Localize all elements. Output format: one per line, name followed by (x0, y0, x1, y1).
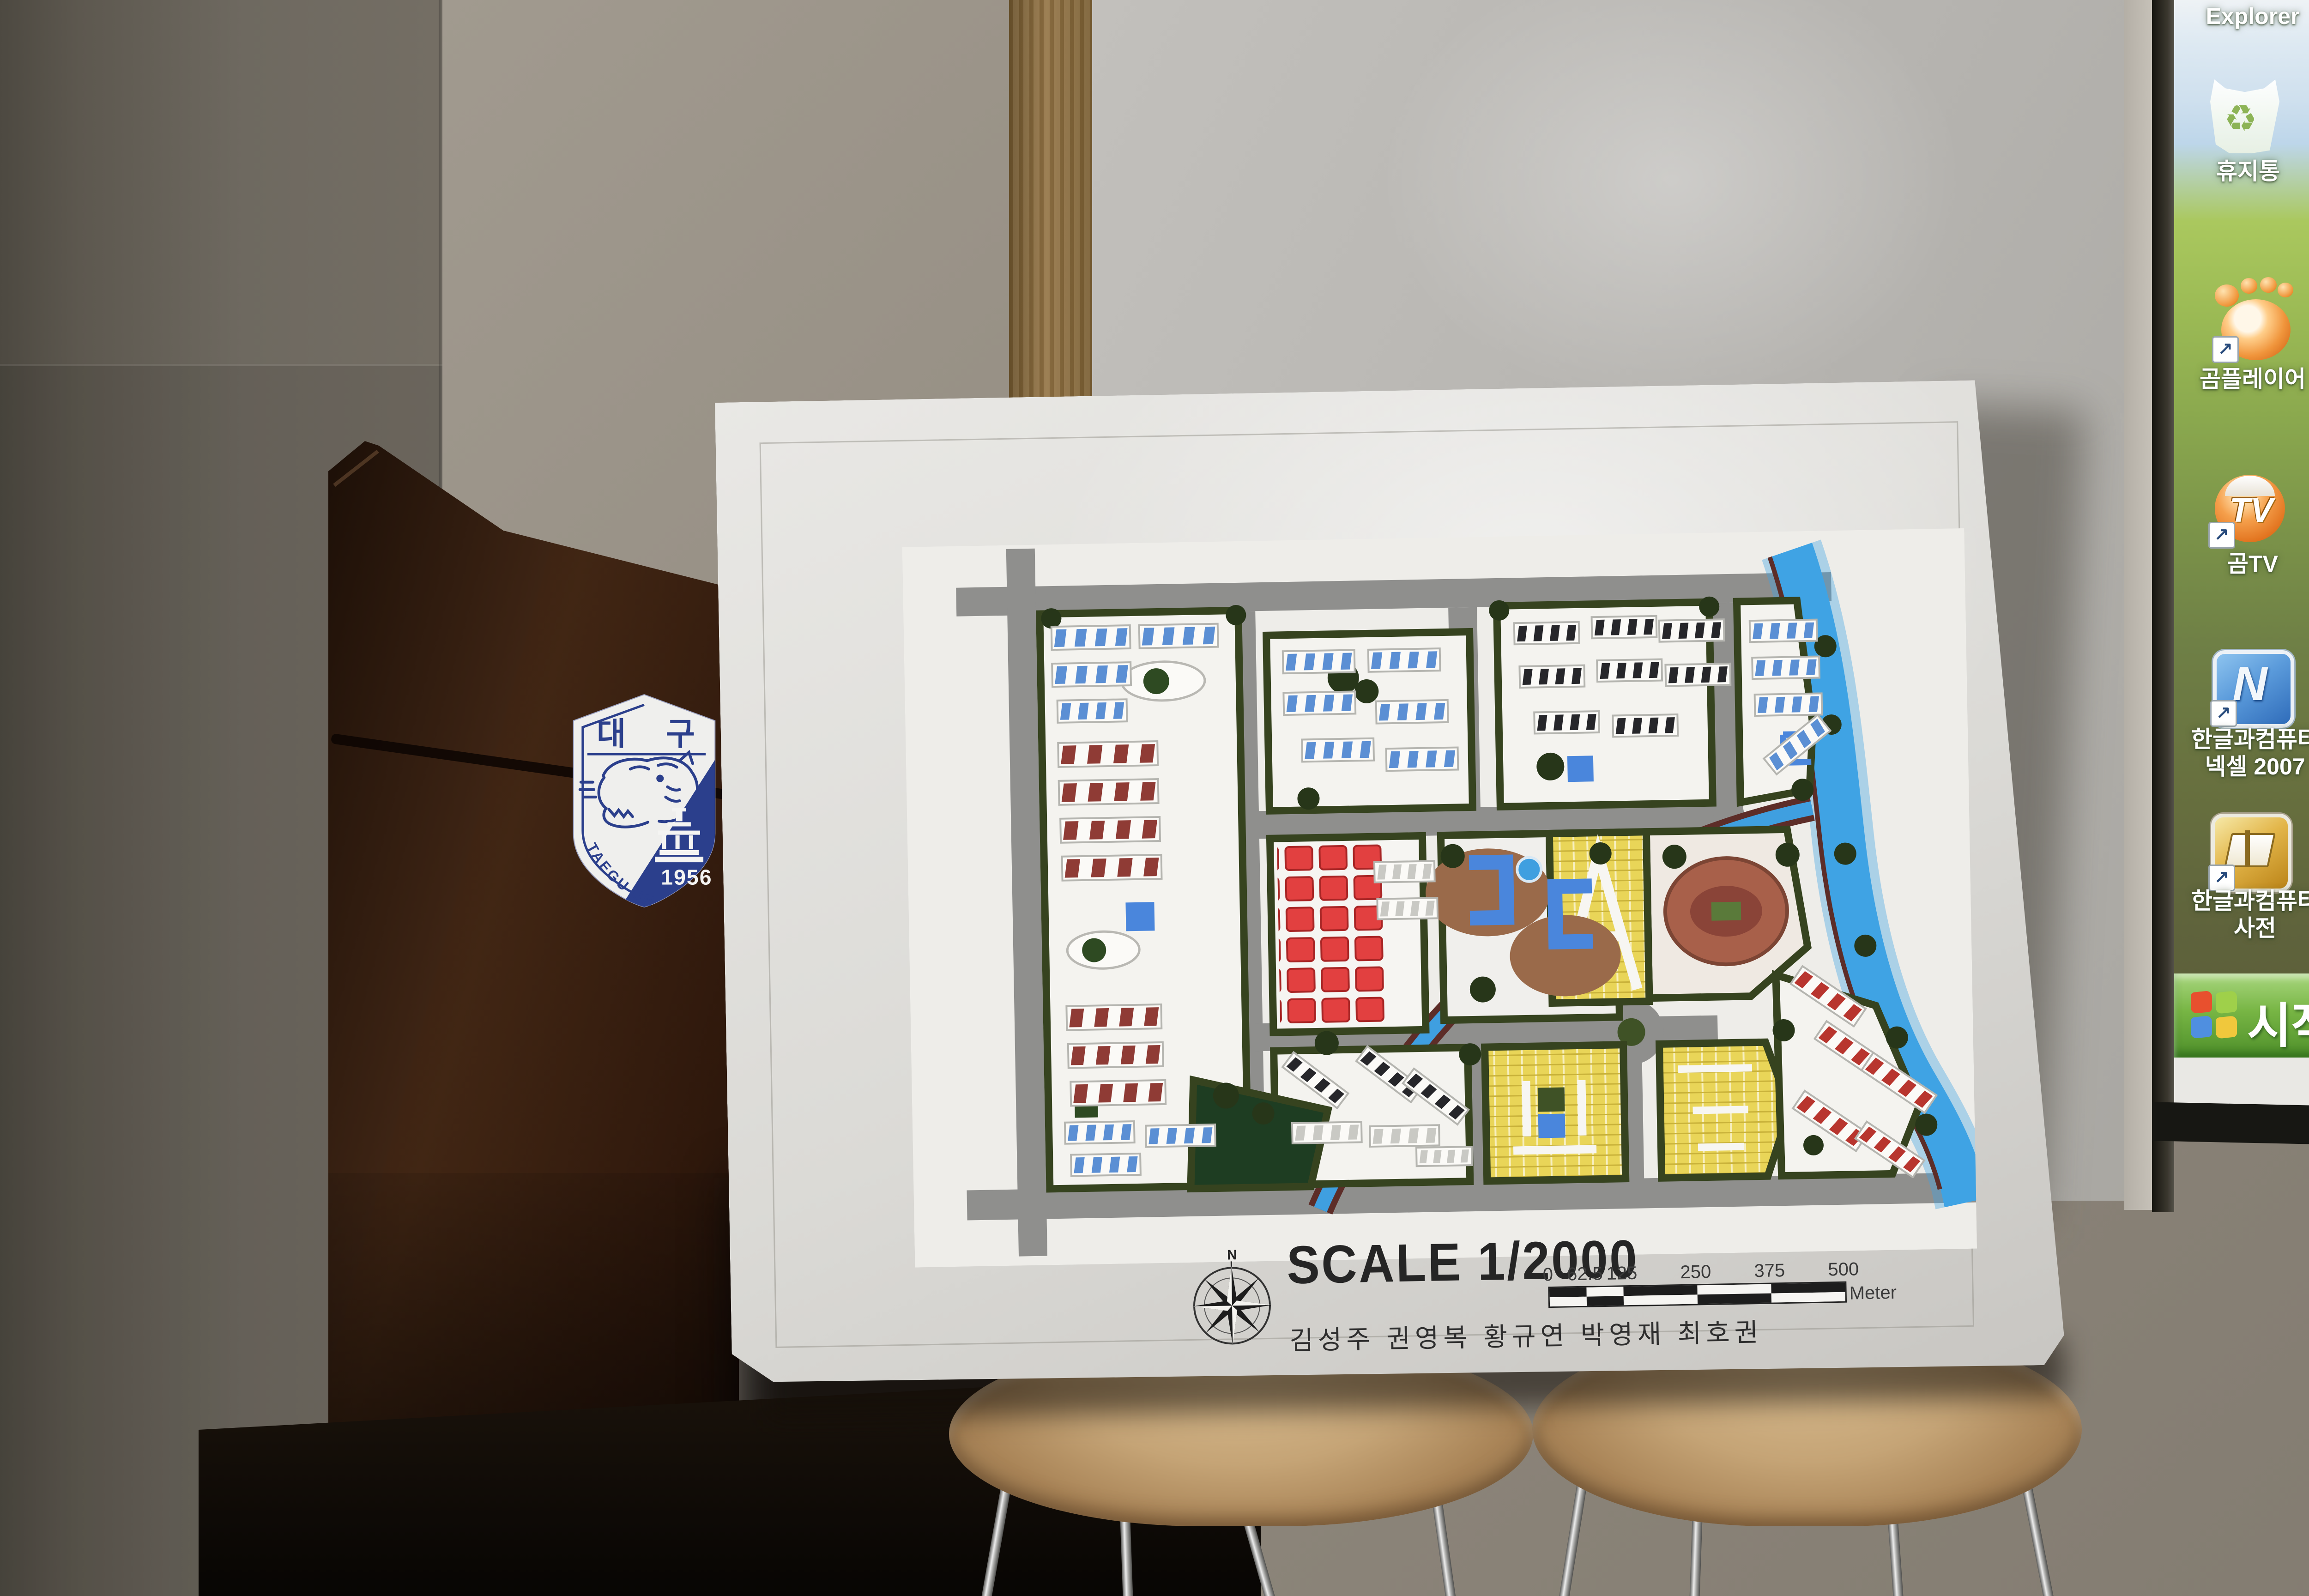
tick-500: 500 (1828, 1259, 1859, 1280)
building-row-blue (1376, 700, 1448, 724)
windows-pane-yellow (2216, 1016, 2237, 1039)
building-row-blue (1368, 648, 1440, 672)
building-row-black (1519, 665, 1584, 688)
urban-site-plan-map (902, 528, 1977, 1268)
recycle-bin-icon[interactable]: ♻ (2210, 79, 2279, 153)
shortcut-arrow-icon: ↗ (2212, 336, 2239, 363)
tick-0: 0 (1542, 1264, 1553, 1285)
building-row-blue (1065, 1121, 1135, 1144)
shortcut-arrow-icon: ↗ (2208, 522, 2235, 549)
authors-names: 김성주 권영복 황규연 박영재 최호권 (1289, 1312, 1763, 1357)
building-row-red (1068, 1042, 1163, 1068)
building-row-blue (1052, 662, 1131, 687)
building-row-white (1377, 898, 1438, 919)
xp-desktop: Explorer In ♻ 휴지통 C Po ↗ 곰플레이어 St TV (2174, 0, 2309, 1106)
desktop-icon-label-dictionary[interactable]: 한글과컴퓨터 사전 (2179, 888, 2309, 942)
court-blue (1538, 1113, 1566, 1138)
windows-pane-blue (2191, 1016, 2212, 1039)
start-button[interactable]: 시작 (2174, 973, 2309, 1058)
building-row-black (1597, 659, 1662, 682)
building-row-blue (1139, 624, 1218, 648)
stadium (1664, 857, 1788, 966)
building-row-red (1070, 1080, 1166, 1106)
paw-toe (2241, 278, 2257, 294)
desktop-icon-label-gom-tv[interactable]: 곰TV (2183, 550, 2309, 578)
paw-toe (2278, 283, 2293, 297)
blue-building (1125, 902, 1154, 931)
start-button-label: 시작 (2247, 986, 2309, 1056)
paw-toe (2215, 284, 2239, 307)
building-row-blue (1283, 650, 1355, 673)
building-row-white (1416, 1147, 1472, 1166)
compass-north-label: N (1227, 1247, 1237, 1263)
screen-frame-bar (2152, 1101, 2309, 1147)
desktop-icon-label-recycle-bin[interactable]: 휴지통 (2188, 158, 2308, 185)
scale-bar-unit: Meter (1849, 1282, 1897, 1304)
building-row-black (1514, 622, 1579, 644)
market-stalls (1277, 843, 1386, 1025)
building-row-blue (1052, 625, 1130, 650)
building-row-black (1665, 664, 1730, 686)
photo-of-presentation-room: Explorer In ♻ 휴지통 C Po ↗ 곰플레이어 St TV (0, 0, 2309, 1596)
scale-bar: 0 62.5 125 250 375 500 Meter (1548, 1259, 1872, 1320)
building-row-blue (1386, 747, 1458, 771)
building-row-red (1062, 855, 1162, 881)
screen-left-edge (2124, 0, 2152, 1210)
gom-player-icon[interactable]: ↗ (2218, 283, 2296, 360)
tick-250: 250 (1680, 1262, 1711, 1283)
desktop-icon-label-nexcell[interactable]: 한글과컴퓨터 넥셀 2007 (2179, 726, 2309, 780)
building-row-white (1292, 1122, 1362, 1143)
shortcut-arrow-icon: ↗ (2210, 700, 2237, 727)
recycle-glyph: ♻ (2224, 97, 2257, 140)
building-row-black (1592, 616, 1657, 638)
building-row-red (1060, 817, 1160, 843)
building-row-blue (1146, 1124, 1215, 1147)
building-row-black (1534, 711, 1599, 733)
compass-rose: N (1183, 1245, 1281, 1353)
windows-logo-icon (2191, 988, 2239, 1041)
emblem-korean-text: 대구 (597, 716, 728, 752)
haansoft-dictionary-icon[interactable]: ↗ (2211, 814, 2291, 892)
desktop-icon-label-explorer[interactable]: Explorer (2183, 3, 2309, 30)
emblem-year: 1956 (661, 865, 712, 889)
screen-bezel (2152, 0, 2174, 1212)
tick-375: 375 (1754, 1260, 1785, 1282)
paw-toe (2260, 277, 2277, 293)
building-row-white (1374, 861, 1435, 882)
building-row-blue (1058, 699, 1127, 723)
tick-125: 125 (1606, 1263, 1638, 1284)
building-row-red (1058, 741, 1158, 767)
building-row-blue (1750, 620, 1817, 642)
taegu-university-emblem: 대구 (560, 691, 728, 910)
desktop-icon-label-gom-player[interactable]: 곰플레이어 (2176, 366, 2309, 393)
projection-screen: Explorer In ♻ 휴지통 C Po ↗ 곰플레이어 St TV (2152, 0, 2309, 1212)
gom-tv-icon[interactable]: TV ↗ (2215, 472, 2289, 546)
building-row-blue (1755, 693, 1822, 716)
building-row-black (1659, 619, 1724, 641)
windows-pane-green (2216, 991, 2237, 1014)
building-row-red (1066, 1004, 1161, 1030)
building-row-blue (1071, 1154, 1141, 1176)
tick-62-5: 62.5 (1567, 1263, 1603, 1285)
building-row-red (1059, 779, 1159, 805)
building-row-blue (1283, 691, 1355, 715)
book-spine (2245, 830, 2250, 866)
building-row-blue (1752, 657, 1819, 679)
scale-bar-checker (1548, 1282, 1847, 1308)
haansoft-nexcell-icon[interactable]: N ↗ (2213, 650, 2294, 728)
block-yellow-south (1485, 1045, 1626, 1181)
site-plan-presentation-board: N (715, 378, 2095, 1388)
xp-taskbar: 시작 (2174, 973, 2309, 1058)
book-glyph (2224, 833, 2276, 867)
building-row-blue (1302, 738, 1374, 762)
building-row-white (1370, 1125, 1439, 1147)
court-green (1538, 1087, 1565, 1112)
building-row-black (1613, 714, 1678, 737)
blue-building (1567, 756, 1594, 782)
windows-pane-red (2191, 991, 2212, 1014)
